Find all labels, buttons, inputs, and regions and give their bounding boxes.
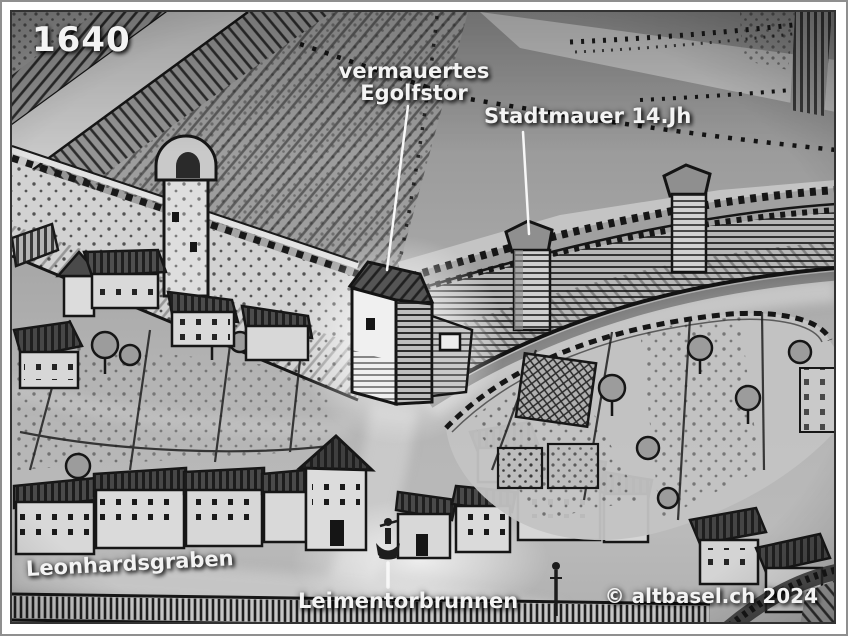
- copyright-label: © altbasel.ch 2024: [605, 586, 818, 608]
- egolfstor-label-line2: Egolfstor: [334, 82, 494, 104]
- egolfstor-label-line1: vermauertes: [334, 60, 494, 82]
- year-label: 1640: [32, 22, 131, 59]
- screenshot-stage: 1640 vermauertes Egolfstor Stadtmauer 14…: [0, 0, 848, 636]
- leimentorbrunnen-label: Leimentorbrunnen: [298, 590, 518, 613]
- map-content: 1640 vermauertes Egolfstor Stadtmauer 14…: [10, 10, 836, 624]
- egolfstor-label: vermauertes Egolfstor: [334, 60, 494, 104]
- stadtmauer-label: Stadtmauer 14.Jh: [484, 105, 691, 128]
